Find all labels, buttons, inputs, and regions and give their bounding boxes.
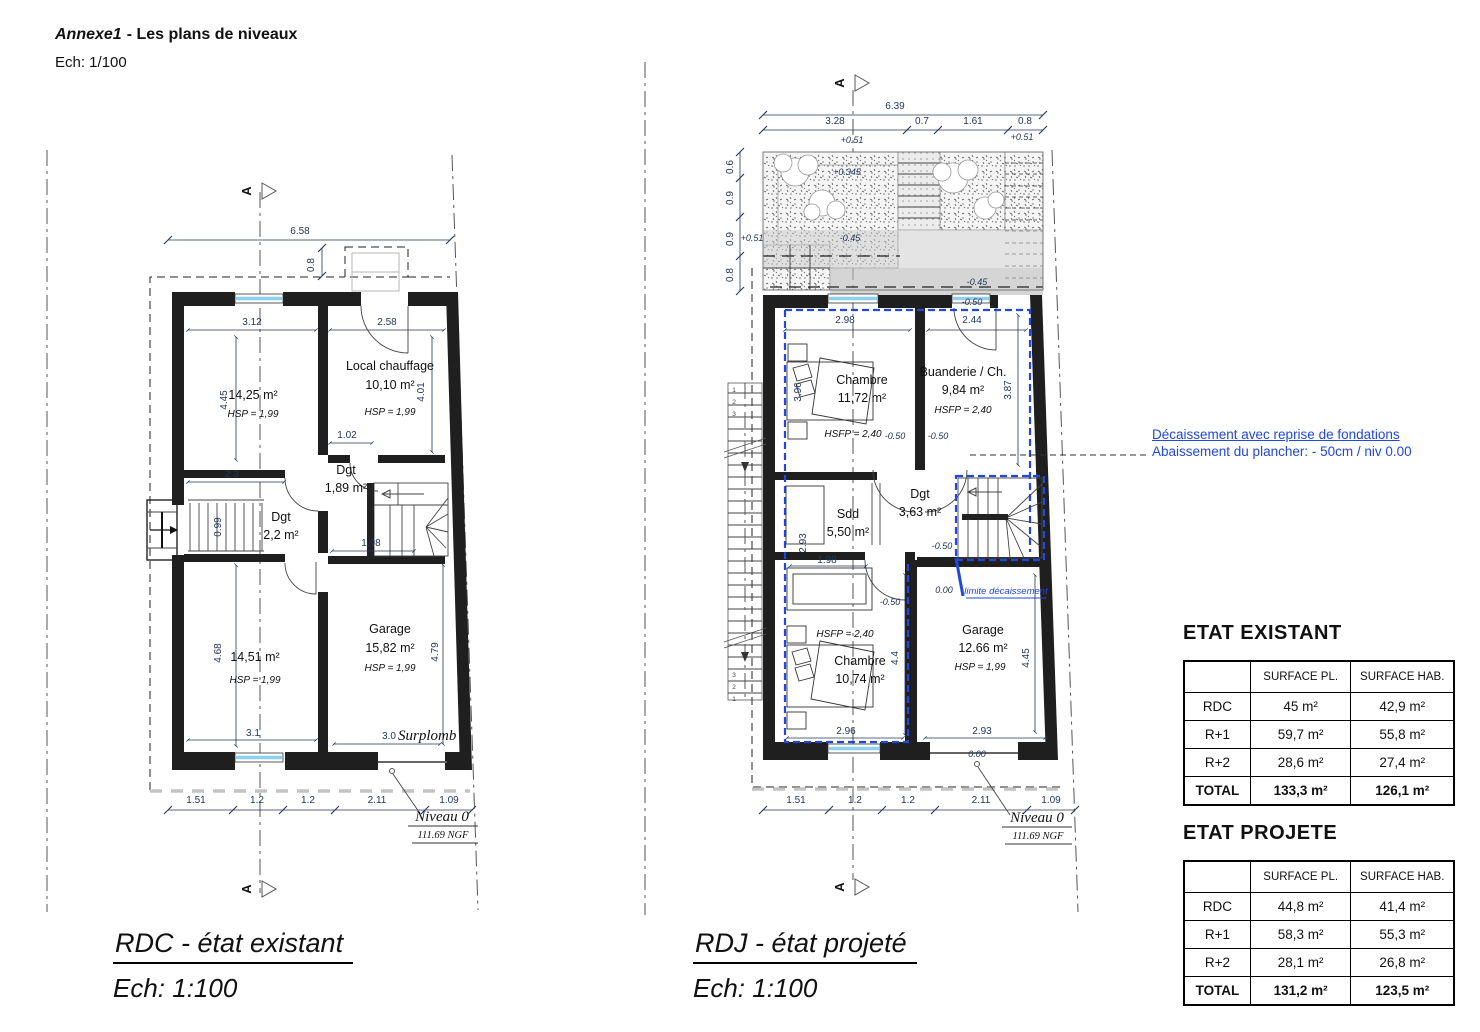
dim-label: 3.0 [382, 731, 396, 742]
table-cell: 27,4 m² [1351, 749, 1454, 777]
dim-label: 3.96 [793, 382, 804, 402]
table-header-row: SURFACE PL. SURFACE HAB. [1184, 661, 1454, 693]
table-cell: R+2 [1184, 949, 1250, 977]
section-marker-bottom: A [832, 879, 869, 895]
table-cell: 45 m² [1250, 693, 1351, 721]
svg-text:2: 2 [732, 399, 736, 406]
sheet-header: Annexe1- Les plans de niveaux Ech: 1/100 [55, 26, 297, 71]
room-name: Sdd [837, 507, 859, 521]
room-height: HSFP = 2,40 [816, 629, 874, 640]
dim-label: 3.28 [825, 116, 845, 127]
level-label: -0.50 [880, 597, 901, 607]
table-cell: 123,5 m² [1351, 977, 1454, 1006]
table-cell: SURFACE HAB. [1351, 661, 1454, 693]
dim-label: 1.51 [186, 795, 206, 806]
dim-label: 4.01 [416, 382, 427, 402]
caption-left-scale: Ech: 1:100 [113, 973, 353, 1004]
door-swing [285, 478, 318, 511]
section-marker-bottom: A [239, 881, 276, 897]
window-top [235, 294, 283, 303]
dim-label: 0.8 [725, 268, 736, 282]
table-cell: 55,3 m² [1351, 921, 1454, 949]
level-label: -0.50 [932, 541, 953, 551]
table-cell: TOTAL [1184, 777, 1250, 806]
dim-label: 0.8 [306, 258, 317, 272]
room-height: HSP = 1,99 [227, 409, 278, 420]
dim-label: 1.51 [786, 795, 806, 806]
table-cell: SURFACE PL. [1250, 661, 1351, 693]
table-cell: 133,3 m² [1250, 777, 1351, 806]
dim-label: 3.87 [1003, 380, 1014, 400]
section-letter: A [239, 884, 254, 894]
door-swing [865, 560, 905, 600]
dim-label: 2.96 [836, 726, 856, 737]
level-label: -0.50 [928, 431, 949, 441]
dim-label: 6.39 [885, 101, 905, 112]
svg-text:3: 3 [732, 672, 736, 679]
dim-label: 1.61 [963, 116, 983, 127]
room-height: HSFP = 2,40 [824, 429, 882, 440]
dim-label: 3.12 [242, 317, 262, 328]
room-height: HSFP = 2,40 [934, 405, 992, 416]
room-area: 11,72 m² [838, 391, 886, 405]
svg-text:1: 1 [732, 696, 736, 703]
door-swing [285, 562, 316, 594]
annotation-line1: Décaissement avec reprise de fondations [1152, 427, 1400, 442]
table-cell: 126,1 m² [1351, 777, 1454, 806]
dim-label: 2.93 [798, 533, 809, 553]
dim-label: 2.93 [972, 726, 992, 737]
level-ngf: 111.69 NGF [1013, 831, 1065, 842]
limite-label: limite décaissement [964, 586, 1048, 597]
dim-label: 4.4 [890, 651, 901, 665]
room-name: Chambre [836, 373, 887, 387]
table-total-row: TOTAL 133,3 m² 126,1 m² [1184, 777, 1454, 806]
sheet-title: Annexe1- Les plans de niveaux [55, 26, 297, 44]
sheet-title-annex: Annexe1 [55, 26, 122, 43]
dim-label: 1.98 [361, 538, 381, 549]
dim-label: 4.79 [430, 642, 441, 662]
table-row: R+2 28,6 m² 27,4 m² [1184, 749, 1454, 777]
table-row: R+1 59,7 m² 55,8 m² [1184, 721, 1454, 749]
dim-label: 3.1 [246, 728, 260, 739]
entrance-porch [147, 500, 178, 560]
table-title: ETAT PROJETE [1183, 822, 1455, 845]
dim-label: 1.2 [901, 795, 915, 806]
table-cell: 41,4 m² [1351, 893, 1454, 921]
level-label: 0.00 [968, 749, 986, 759]
room-height: HSP = 1,99 [364, 663, 415, 674]
dim-label: 4.45 [1021, 648, 1032, 668]
dim-label: 2.11 [368, 795, 387, 806]
caption-left-title: RDC - état existant [113, 928, 353, 964]
room-name: Buanderie / Ch. [920, 365, 1007, 379]
section-triangle-icon [855, 75, 869, 91]
section-letter: A [239, 186, 254, 196]
table-cell: R+1 [1184, 921, 1250, 949]
table-cell: R+1 [1184, 721, 1250, 749]
level-label: -0.50 [962, 297, 983, 307]
room-area: 5,50 m² [827, 525, 869, 539]
window-bottom [828, 744, 880, 753]
room-height: HSP = 1,99 [364, 407, 415, 418]
room-name: Garage [369, 622, 411, 636]
room-area: 14,51 m² [230, 650, 279, 664]
table-cell: TOTAL [1184, 977, 1250, 1006]
dim-label: 1.09 [439, 795, 459, 806]
dim-label: 2.44 [962, 315, 982, 326]
dim-label: 2.98 [835, 315, 855, 326]
table-header-row: SURFACE PL. SURFACE HAB. [1184, 861, 1454, 893]
dim-label: 0.7 [915, 116, 929, 127]
svg-text:2: 2 [732, 684, 736, 691]
room-area: 1,89 m² [325, 481, 367, 495]
room-name: Dgt [336, 463, 356, 477]
table-row: RDC 45 m² 42,9 m² [1184, 693, 1454, 721]
room-name: Dgt [910, 487, 930, 501]
level-label: +0.51 [841, 135, 864, 145]
caption-left: RDC - état existant Ech: 1:100 [113, 928, 353, 1004]
plan-left-drawing: A A [47, 150, 478, 912]
section-triangle-icon [855, 879, 869, 895]
dim-label: 2.11 [972, 795, 991, 806]
level-label: -0.45 [840, 233, 862, 243]
room-area: 12.66 m² [958, 641, 1007, 655]
plan-right-drawing: A A [645, 62, 1148, 915]
table-etat-projete: ETAT PROJETE SURFACE PL. SURFACE HAB. RD… [1183, 822, 1455, 1006]
section-marker-top: A [832, 75, 869, 91]
dim-label: 0.9 [725, 191, 736, 205]
caption-right-title: RDJ - état projeté [693, 928, 917, 964]
section-marker-top: A [239, 183, 276, 199]
room-area: 10,74 m² [835, 672, 884, 686]
table-cell: R+2 [1184, 749, 1250, 777]
table-cell: 44,8 m² [1250, 893, 1351, 921]
dim-label: 4.68 [213, 643, 224, 663]
section-triangle-icon [262, 183, 276, 199]
level-label: +0.51 [1011, 132, 1034, 142]
room-name: Garage [962, 623, 1004, 637]
table-cell: 42,9 m² [1351, 693, 1454, 721]
dim-label: 1.02 [337, 430, 357, 441]
level-ngf: 111.69 NGF [418, 830, 470, 841]
level-name: Niveau 0 [414, 809, 469, 825]
table-row: R+2 28,1 m² 26,8 m² [1184, 949, 1454, 977]
table-title: ETAT EXISTANT [1183, 622, 1455, 645]
level-label: -0.45 [967, 277, 989, 287]
svg-text:1: 1 [732, 387, 736, 394]
dim-label: 0.8 [1018, 116, 1032, 127]
room-name: Local chauffage [346, 359, 434, 373]
room-name: Dgt [271, 510, 291, 524]
surplomb-label: Surplomb [398, 728, 457, 744]
room-area: 15,82 m² [365, 641, 414, 655]
section-triangle-icon [262, 881, 276, 897]
table-cell: SURFACE HAB. [1351, 861, 1454, 893]
table-cell: RDC [1184, 693, 1250, 721]
caption-right-scale: Ech: 1:100 [693, 973, 917, 1004]
table-cell [1184, 861, 1250, 893]
sheet-title-rest: - Les plans de niveaux [127, 26, 298, 43]
walls [763, 295, 1058, 760]
table-cell: RDC [1184, 893, 1250, 921]
level-label: 0.00 [935, 585, 953, 595]
dim-label: 1.09 [1041, 795, 1061, 806]
dim-label: 6.58 [290, 226, 310, 237]
section-letter: A [832, 882, 847, 892]
decaissement-annotation: Décaissement avec reprise de fondations … [1152, 426, 1452, 460]
dim-label: 0.99 [213, 517, 224, 537]
level-name: Niveau 0 [1009, 810, 1064, 826]
dim-label: 1.2 [301, 795, 315, 806]
sheet-scale: Ech: 1/100 [55, 54, 297, 71]
stairs-left [188, 500, 264, 551]
table-cell [1184, 661, 1250, 693]
dim-label: 2.58 [377, 317, 397, 328]
dim-label: 0.9 [725, 232, 736, 246]
room-height: HSP = 1,99 [954, 662, 1005, 673]
overhang-dashed-outline [150, 277, 450, 790]
room-area: 3,63 m² [899, 505, 941, 519]
plan-sheet: A A [0, 0, 1480, 1032]
dim-label: 1.98 [817, 555, 837, 566]
table-cell: SURFACE PL. [1250, 861, 1351, 893]
level-label: +0.345 [833, 167, 862, 177]
room-height: HSP = 1,99 [229, 675, 280, 686]
level-label: -0.50 [885, 431, 906, 441]
terrace [763, 152, 1043, 295]
table-row: R+1 58,3 m² 55,3 m² [1184, 921, 1454, 949]
dim-label: 2.3 [225, 469, 239, 480]
stairs-exterior: 1 2 3 3 2 1 [724, 383, 766, 703]
table-cell: 59,7 m² [1250, 721, 1351, 749]
window-top-1 [828, 294, 878, 303]
section-letter: A [832, 78, 847, 88]
room-area: 14,25 m² [228, 388, 277, 402]
level-label: +0.51 [741, 233, 764, 243]
window-bottom [235, 753, 283, 762]
table-total-row: TOTAL 131,2 m² 123,5 m² [1184, 977, 1454, 1006]
dim-label: 1.2 [250, 795, 264, 806]
room-area: 2,2 m² [263, 528, 298, 542]
table-row: RDC 44,8 m² 41,4 m² [1184, 893, 1454, 921]
table-cell: 55,8 m² [1351, 721, 1454, 749]
table-etat-existant: ETAT EXISTANT SURFACE PL. SURFACE HAB. R… [1183, 622, 1455, 806]
table-cell: 58,3 m² [1250, 921, 1351, 949]
caption-right: RDJ - état projeté Ech: 1:100 [693, 928, 917, 1004]
table-cell: 26,8 m² [1351, 949, 1454, 977]
table-cell: 28,1 m² [1250, 949, 1351, 977]
table-cell: 131,2 m² [1250, 977, 1351, 1006]
stair-arrow-icon [741, 462, 749, 472]
room-area: 9,84 m² [942, 383, 984, 397]
entry-door-swing [361, 306, 408, 353]
dim-label: 1.2 [848, 795, 862, 806]
annotation-line2: Abaissement du plancher: - 50cm / niv 0.… [1152, 443, 1452, 460]
room-area: 10,10 m² [365, 378, 414, 392]
room-name: Chambre [834, 654, 885, 668]
table-cell: 28,6 m² [1250, 749, 1351, 777]
svg-text:3: 3 [732, 411, 736, 418]
dim-label: 0.6 [725, 160, 736, 174]
